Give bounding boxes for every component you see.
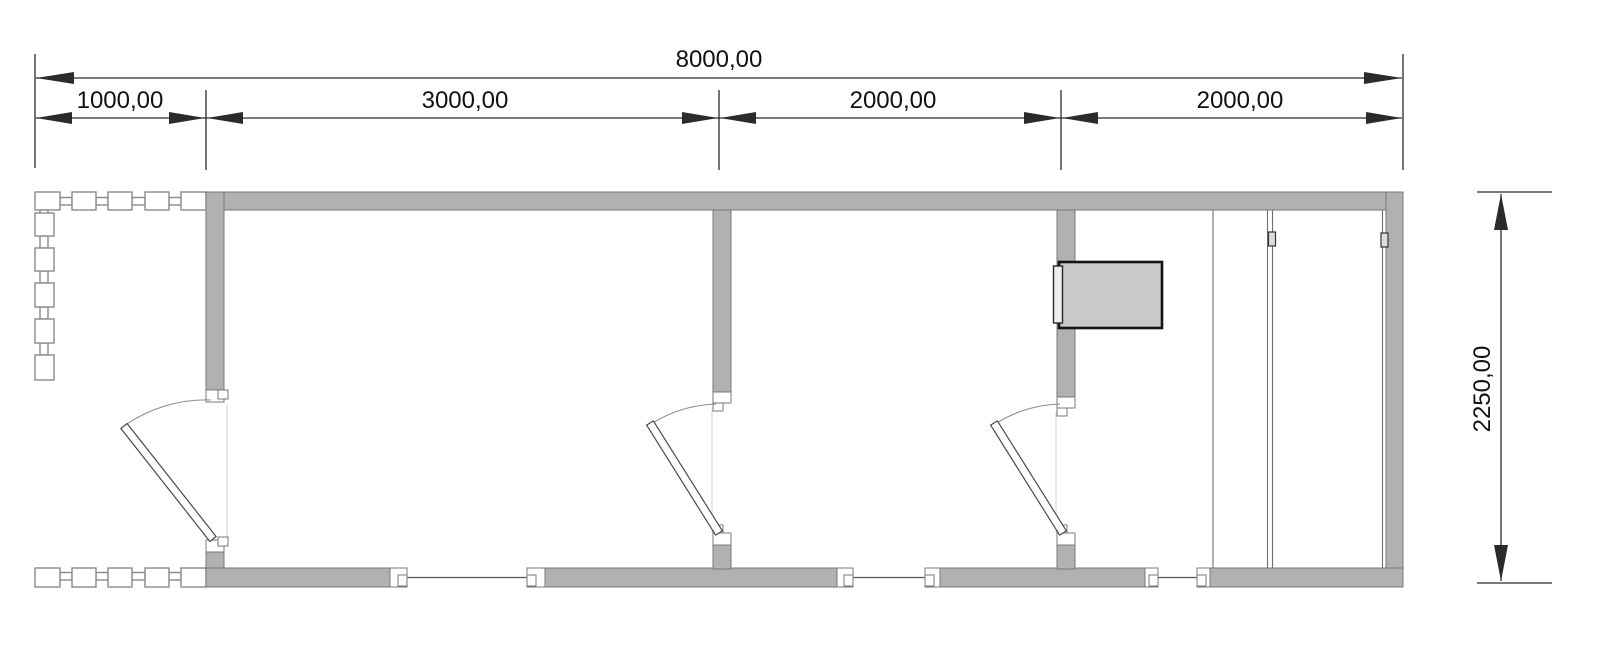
arrow-icon [1494,194,1508,230]
fence-rail [40,236,48,248]
floor-plan-canvas: 8000,00 1000,00 3000,00 2000,00 2000,00 … [0,0,1600,645]
fence-rail [132,198,145,206]
fence-post [181,192,206,210]
arrow-icon [1364,72,1402,84]
fence-rail [96,198,108,206]
dim-label-segment-3: 2000,00 [850,87,937,114]
appliance [1054,262,1163,328]
fence-rail [132,573,145,581]
wall-right [1386,192,1403,587]
fence-rail [40,343,48,355]
window-jamb-notch [527,575,536,586]
fence-post [35,568,60,587]
fence-post [181,568,206,587]
sliding-door-handle [1269,232,1276,246]
window-jamb-notch [844,575,853,586]
dim-label-total-width: 8000,00 [676,46,763,73]
fence-post [72,568,96,587]
room-door1-leaf [647,421,723,535]
dimension-labels: 8000,00 1000,00 3000,00 2000,00 2000,00 … [77,46,1496,432]
fence-rail [40,271,48,283]
dimension-arrows [36,72,1508,581]
wall-bottom-seg4 [1210,568,1403,587]
wall-bottom-seg1 [206,568,390,587]
arrow-icon [682,112,718,124]
appliance-side-panel [1054,266,1063,323]
fence-rail [96,573,108,581]
window-jamb-notch [398,575,407,586]
dim-label-height: 2250,00 [1469,346,1496,433]
entry-door-leaf [121,424,216,542]
arrow-icon [36,112,72,124]
wall-bottom-seg2 [545,568,837,587]
wall-top [206,192,1403,210]
fence-rail [40,307,48,319]
arrow-icon [1494,545,1508,581]
fence-post [35,248,54,271]
dimension-lines [35,54,1552,583]
fence-rail [169,573,181,581]
fence-rail [169,198,181,206]
partition1-upper [713,210,731,392]
walls [206,192,1403,587]
fence-post [35,319,54,343]
room-door1-swing-arc [651,404,716,424]
fence-post [35,192,60,210]
fence-rail [60,573,72,581]
arrow-icon [169,112,205,124]
arrow-icon [207,112,243,124]
fence-post [145,192,169,210]
fence-post [35,213,54,236]
sliding-door-handle [1381,233,1388,247]
dim-label-segment-2: 3000,00 [422,87,509,114]
window-jamb-notch [1149,575,1158,586]
appliance-box [1059,262,1162,328]
fence-post [35,283,54,307]
porch-railing [35,192,206,587]
fence-post [108,192,132,210]
door-jamb-notch [1057,408,1067,416]
door-jamb [713,392,731,403]
door-jamb-notch [218,537,228,546]
partition1-stub [713,545,731,569]
arrow-icon [1062,112,1098,124]
room-door2-leaf [991,421,1067,535]
arrow-icon [1366,112,1402,124]
window-jamb-notch [925,575,934,586]
fence-post [145,568,169,587]
fence-post [72,192,96,210]
fence-post [108,568,132,587]
window-jamb-notch [1197,575,1206,586]
room-door2-swing-arc [995,404,1060,424]
partition2-stub [1057,545,1075,569]
fence-rail [60,198,72,206]
arrow-icon [720,112,756,124]
dim-label-segment-4: 2000,00 [1197,87,1284,114]
arrow-icon [36,72,74,84]
fence-post [35,355,54,380]
doors [121,390,1075,552]
dim-label-segment-1: 1000,00 [77,87,164,114]
door-jamb [1057,397,1075,408]
wall-left-upper [206,192,224,390]
entry-door-swing-arc [124,400,211,426]
wardrobe [1213,211,1388,569]
wall-bottom-seg3 [940,568,1145,587]
arrow-icon [1024,112,1060,124]
door-jamb-notch [218,390,228,399]
